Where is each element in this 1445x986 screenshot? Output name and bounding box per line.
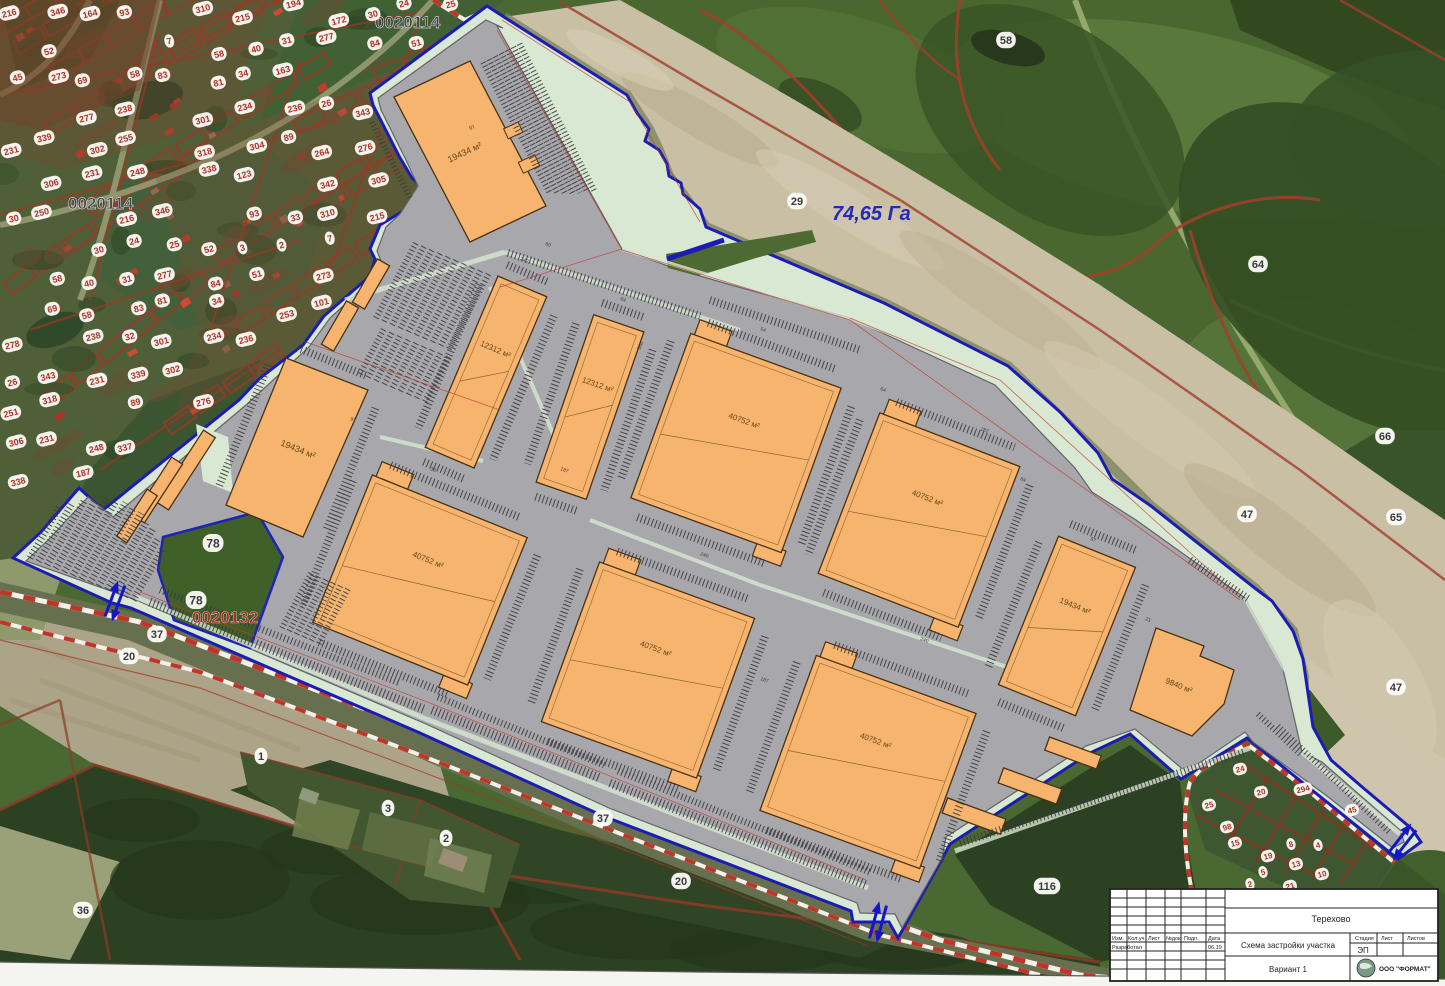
svg-text:06.19: 06.19 bbox=[1208, 945, 1222, 951]
svg-text:0020114: 0020114 bbox=[68, 194, 134, 213]
svg-text:74,65 Га: 74,65 Га bbox=[832, 203, 911, 225]
svg-text:58: 58 bbox=[1000, 35, 1012, 47]
svg-text:47: 47 bbox=[1241, 509, 1253, 521]
svg-text:37: 37 bbox=[151, 629, 163, 641]
svg-text:0020132: 0020132 bbox=[192, 608, 258, 627]
svg-text:78: 78 bbox=[206, 536, 220, 550]
svg-text:47: 47 bbox=[1390, 682, 1402, 694]
svg-text:Схема застройки участка: Схема застройки участка bbox=[1241, 941, 1336, 950]
svg-text:20: 20 bbox=[123, 651, 135, 663]
svg-text:2: 2 bbox=[443, 833, 449, 845]
svg-text:Стадия: Стадия bbox=[1355, 936, 1374, 942]
svg-text:0020114: 0020114 bbox=[375, 13, 441, 32]
svg-text:Лист: Лист bbox=[1381, 936, 1393, 942]
svg-text:65: 65 bbox=[1390, 512, 1402, 524]
svg-text:29: 29 bbox=[791, 196, 803, 208]
svg-text:66: 66 bbox=[1379, 431, 1391, 443]
svg-text:Терехово: Терехово bbox=[1312, 914, 1351, 924]
svg-text:37: 37 bbox=[597, 813, 609, 825]
svg-text:36: 36 bbox=[77, 905, 89, 917]
svg-text:Изм.: Изм. bbox=[1112, 936, 1124, 942]
svg-text:№док: №док bbox=[1166, 936, 1181, 942]
svg-text:Кол.уч: Кол.уч bbox=[1128, 936, 1145, 942]
svg-text:3: 3 bbox=[385, 803, 391, 815]
svg-text:64: 64 bbox=[1252, 259, 1265, 271]
svg-text:Подп.: Подп. bbox=[1184, 936, 1199, 942]
svg-text:Лист: Лист bbox=[1148, 936, 1160, 942]
svg-text:Вариант 1: Вариант 1 bbox=[1269, 965, 1307, 974]
svg-text:1: 1 bbox=[258, 751, 264, 763]
svg-text:Листов: Листов bbox=[1407, 936, 1425, 942]
svg-text:ООО "ФОРМАТ": ООО "ФОРМАТ" bbox=[1379, 966, 1431, 973]
svg-text:78: 78 bbox=[189, 593, 203, 607]
svg-text:116: 116 bbox=[1038, 881, 1056, 893]
svg-text:Разработал: Разработал bbox=[1112, 945, 1142, 951]
svg-text:ЭП: ЭП bbox=[1357, 946, 1369, 955]
svg-text:20: 20 bbox=[675, 876, 687, 888]
svg-text:Дата: Дата bbox=[1208, 936, 1221, 942]
